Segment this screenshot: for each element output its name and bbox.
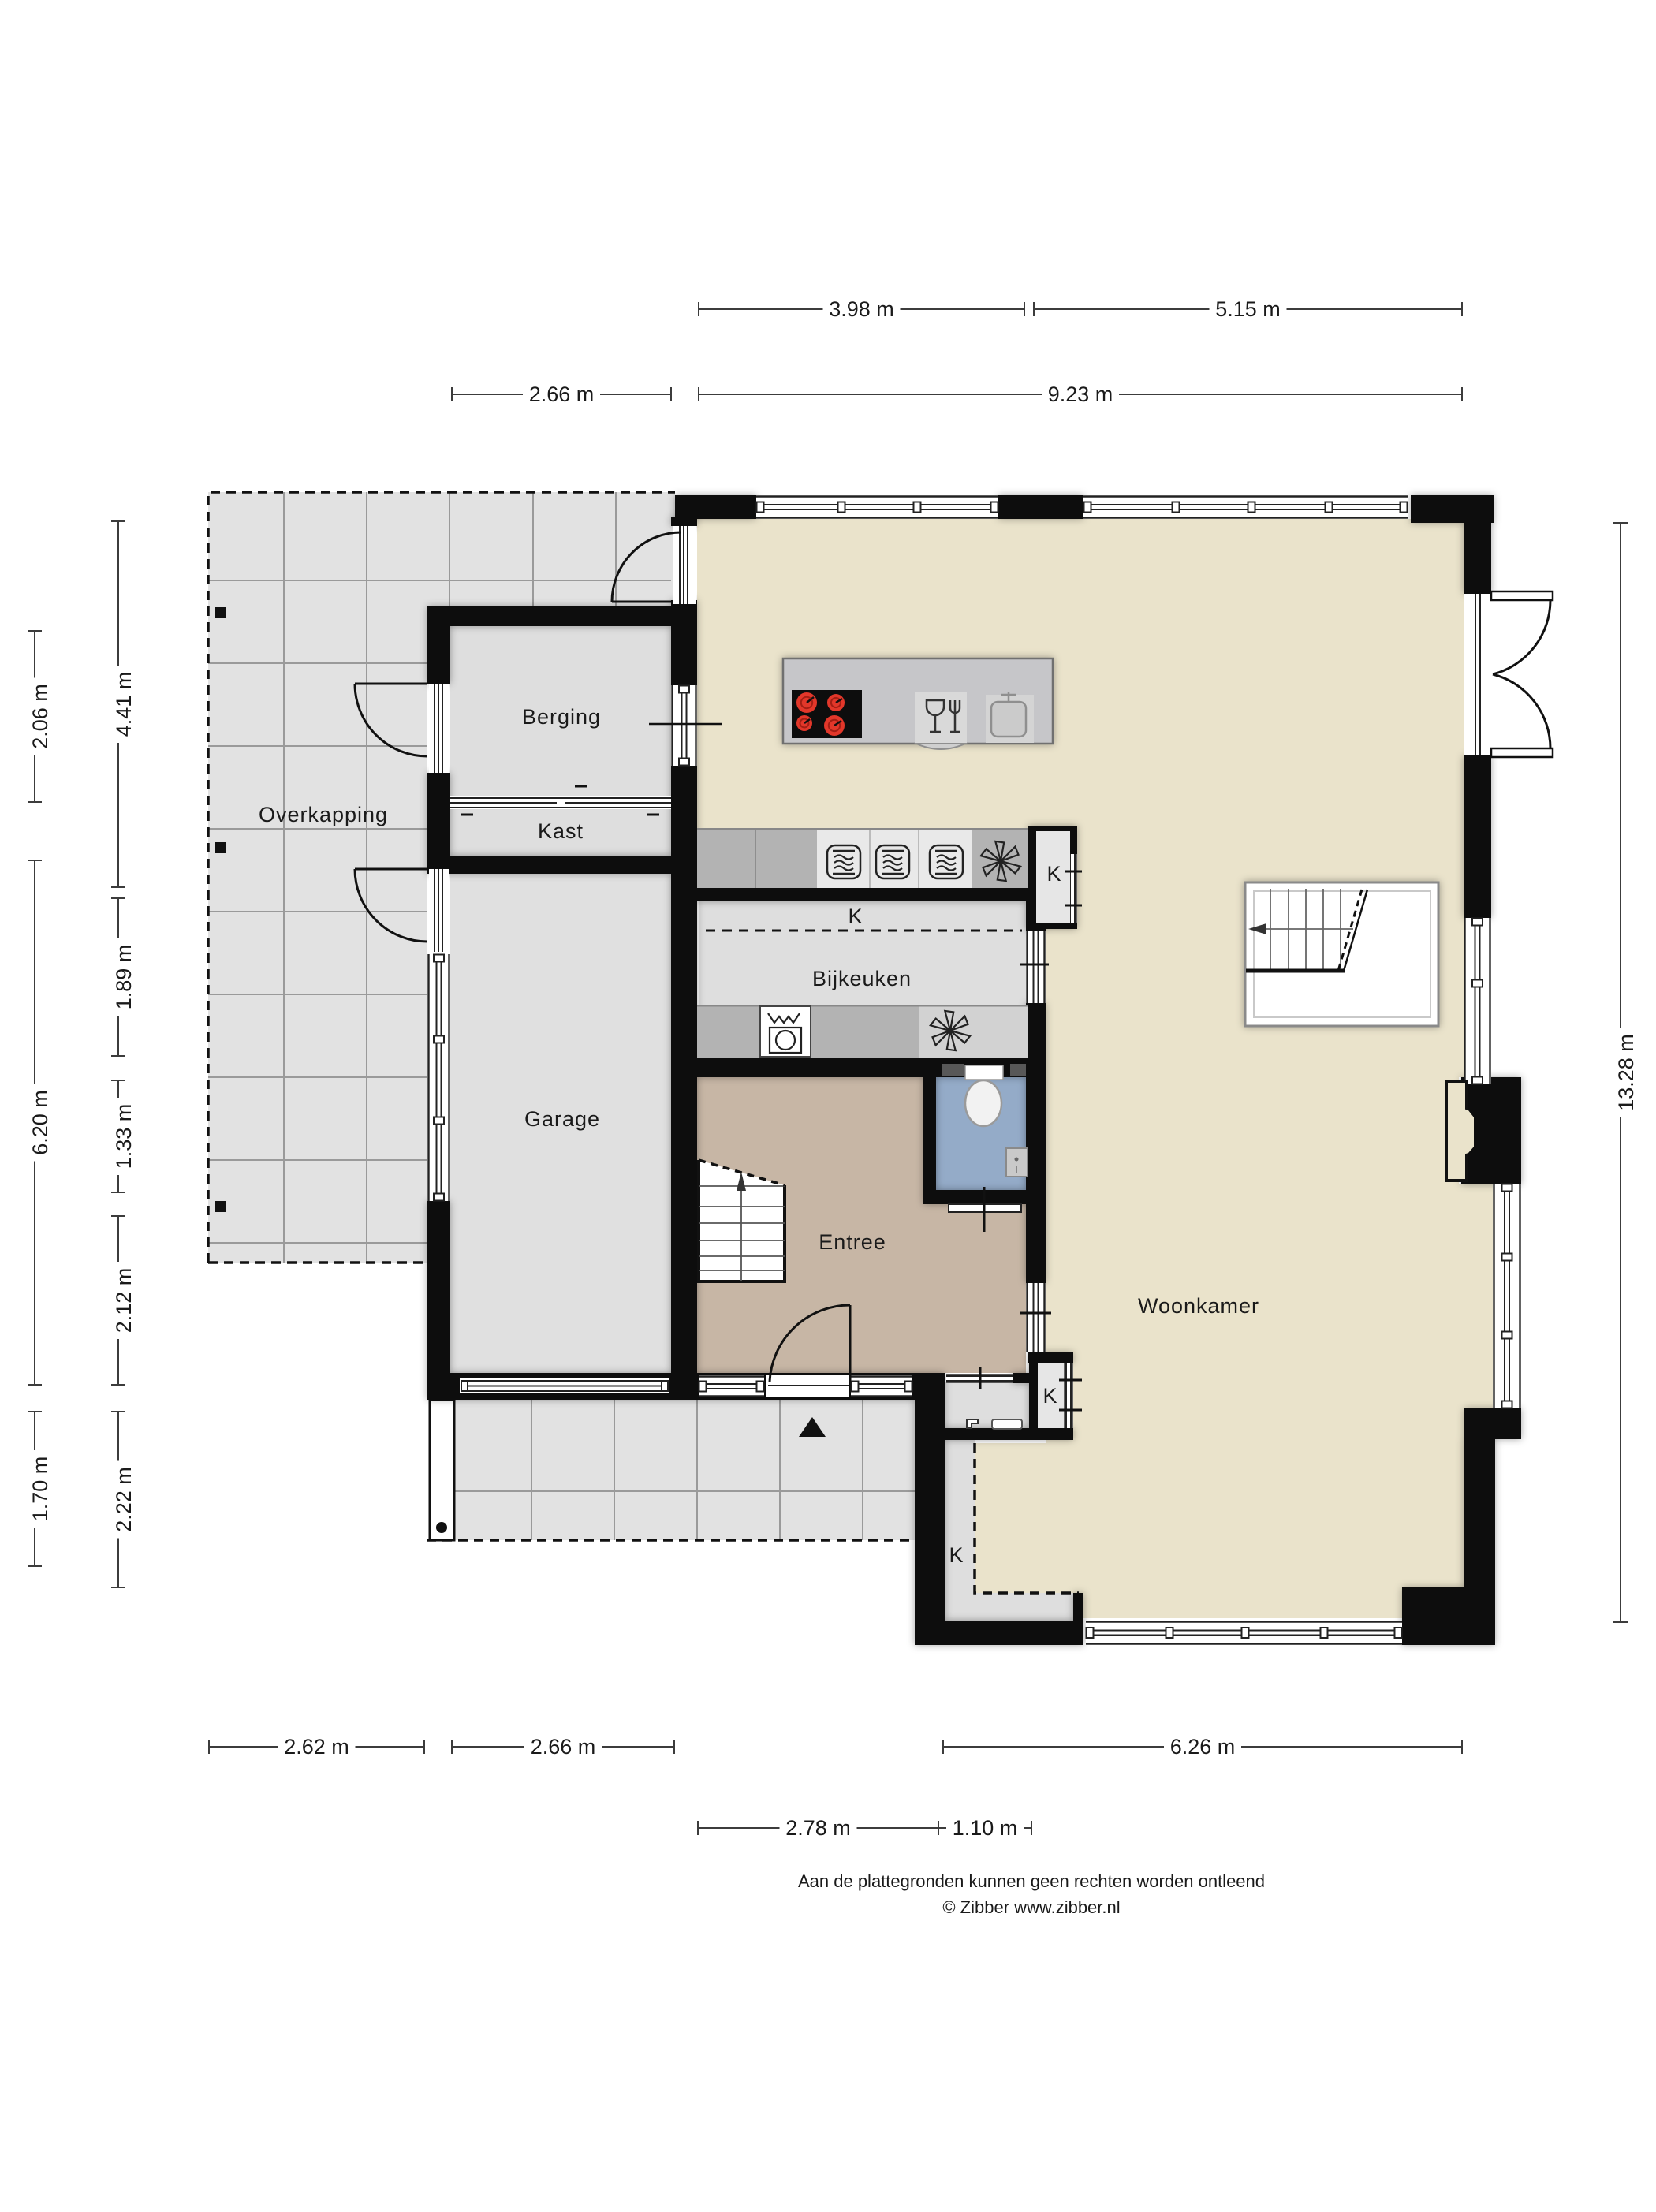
svg-text:13.28 m: 13.28 m — [1614, 1034, 1638, 1111]
svg-text:1.89 m: 1.89 m — [112, 945, 136, 1010]
svg-text:1.33 m: 1.33 m — [112, 1104, 136, 1169]
svg-text:9.23 m: 9.23 m — [1048, 382, 1113, 406]
svg-text:© Zibber www.zibber.nl: © Zibber www.zibber.nl — [942, 1897, 1120, 1917]
svg-text:Entree: Entree — [819, 1230, 886, 1254]
svg-text:6.26 m: 6.26 m — [1170, 1735, 1236, 1759]
svg-text:Bijkeuken: Bijkeuken — [812, 967, 912, 990]
svg-text:K: K — [1042, 1384, 1057, 1408]
svg-text:Berging: Berging — [522, 705, 601, 729]
svg-text:Kast: Kast — [538, 819, 584, 843]
svg-text:5.15 m: 5.15 m — [1215, 297, 1281, 321]
svg-text:4.41 m: 4.41 m — [112, 672, 136, 737]
svg-text:2.06 m: 2.06 m — [28, 684, 52, 749]
svg-text:2.78 m: 2.78 m — [785, 1816, 851, 1840]
svg-text:2.66 m: 2.66 m — [531, 1735, 596, 1759]
svg-text:K: K — [848, 905, 863, 928]
svg-text:6.20 m: 6.20 m — [28, 1090, 52, 1155]
svg-text:2.66 m: 2.66 m — [529, 382, 595, 406]
svg-text:3.98 m: 3.98 m — [829, 297, 894, 321]
svg-text:2.22 m: 2.22 m — [112, 1467, 136, 1532]
svg-text:2.62 m: 2.62 m — [284, 1735, 349, 1759]
svg-text:Woonkamer: Woonkamer — [1138, 1294, 1259, 1318]
svg-text:Garage: Garage — [524, 1107, 600, 1131]
svg-text:Overkapping: Overkapping — [259, 803, 388, 826]
svg-text:K: K — [1046, 862, 1061, 886]
svg-text:2.12 m: 2.12 m — [112, 1268, 136, 1334]
svg-text:Aan de plattegronden kunnen ge: Aan de plattegronden kunnen geen rechten… — [798, 1871, 1265, 1891]
svg-text:1.70 m: 1.70 m — [28, 1457, 52, 1522]
svg-text:K: K — [949, 1543, 964, 1567]
svg-text:1.10 m: 1.10 m — [953, 1816, 1018, 1840]
